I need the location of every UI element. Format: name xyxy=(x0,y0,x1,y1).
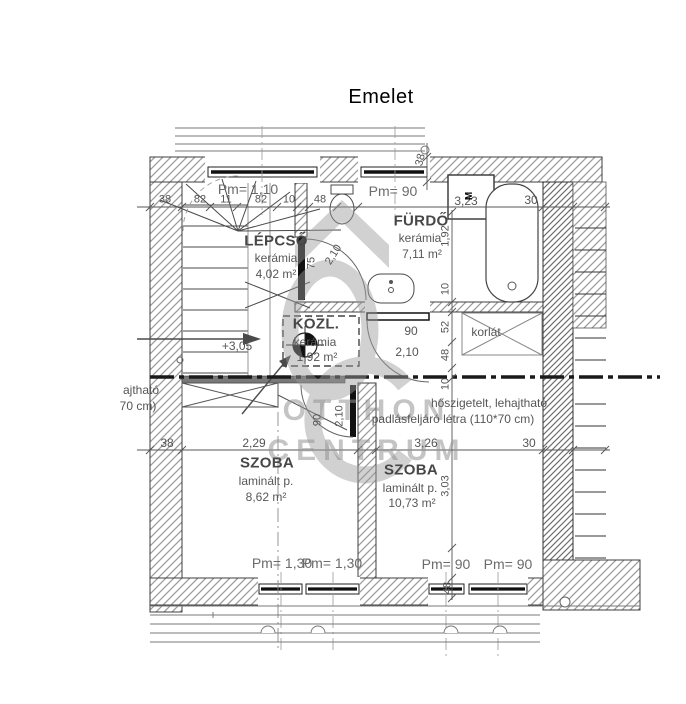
attic-note-line1: hőszigetelt, lehajtható xyxy=(431,397,547,409)
parapet-szoba-right-1: Pm= 90 xyxy=(422,557,471,571)
railing-label: korlát xyxy=(471,326,500,338)
dim-room-right-depth: 3,03 xyxy=(441,475,452,496)
floorplan-linework xyxy=(0,0,686,704)
dim-sill-detail: 48 xyxy=(443,582,454,594)
dim-top-82a: 82 xyxy=(194,195,206,206)
room-furdo-floor: kerámia xyxy=(399,232,442,244)
wall-right-dark xyxy=(543,182,573,610)
door-note-line1: ajtható xyxy=(123,384,159,396)
wall-bath-left xyxy=(295,183,307,237)
dim-level: +3,05 xyxy=(222,340,252,352)
parapet-szoba-left-2: Pm= 1,30 xyxy=(302,556,362,570)
room-szoba-right-floor: laminált p. xyxy=(383,482,438,494)
dim-top-11: 11 xyxy=(220,195,231,206)
door-note-line2: 70 cm) xyxy=(120,400,157,412)
downspout-top xyxy=(421,146,429,154)
sink xyxy=(368,274,414,303)
page-title: Emelet xyxy=(348,87,413,107)
washing-machine-label: M xyxy=(465,192,475,200)
dim-door-bath-w: 75 xyxy=(307,257,318,269)
dim-room-left-width: 2,29 xyxy=(242,437,265,449)
dim-wall-right-thickness: 30 xyxy=(522,437,535,449)
room-lepcso-name: LÉPCSŐ xyxy=(244,234,307,249)
roof-lines-top xyxy=(175,128,425,151)
room-kozl-floor: kerámia xyxy=(294,336,337,348)
dim-top-38: 38 xyxy=(159,195,171,206)
dim-wall-top-right: 30 xyxy=(524,194,537,206)
room-szoba-left-floor: laminált p. xyxy=(239,475,294,487)
parapet-szoba-right-2: Pm= 90 xyxy=(484,557,533,571)
dim-bath-depth: 1,92 xyxy=(441,225,452,246)
room-kozl-area: 1,92 m² xyxy=(297,351,338,363)
room-szoba-right-area: 10,73 m² xyxy=(388,497,435,509)
dim-room-right-width: 3,26 xyxy=(414,437,437,449)
attic-note-line2: padlásfeljáró létra (110*70 cm) xyxy=(372,413,535,425)
dim-right-10a: 10 xyxy=(441,283,452,295)
dim-door-hall-w: 90 xyxy=(404,325,417,337)
room-szoba-left-name: SZOBA xyxy=(240,456,294,471)
dim-door-room-h: 2,10 xyxy=(335,405,346,426)
dim-wall-left-thickness: 38 xyxy=(160,437,173,449)
dim-right-48: 48 xyxy=(441,349,452,361)
dim-top-82b: 82 xyxy=(255,195,267,206)
room-szoba-right-name: SZOBA xyxy=(384,463,438,478)
room-lepcso-floor: kerámia xyxy=(255,252,298,264)
dim-top-10: 10 xyxy=(283,195,295,206)
dim-door-hall-h: 2,10 xyxy=(395,346,418,358)
dim-right-52: 52 xyxy=(441,321,452,333)
parapet-bath: Pm= 90 xyxy=(369,184,418,198)
room-lepcso-area: 4,02 m² xyxy=(256,268,297,280)
dim-door-room-w: 90 xyxy=(313,414,324,426)
wall-left xyxy=(150,182,182,612)
room-kozl-name: KÖZL. xyxy=(293,317,340,332)
wall-bottom-right-block xyxy=(543,560,640,610)
wall-right-outer xyxy=(573,182,606,328)
room-furdo-area: 7,11 m² xyxy=(402,248,442,260)
room-szoba-left-area: 8,62 m² xyxy=(246,491,287,503)
dim-right-10b: 10 xyxy=(441,378,452,390)
floorplan-page: Emelet OTTHON CENTRUM Pm= 1,10 Pm= 90 Pm… xyxy=(0,0,686,704)
dim-top-48: 48 xyxy=(314,195,326,206)
